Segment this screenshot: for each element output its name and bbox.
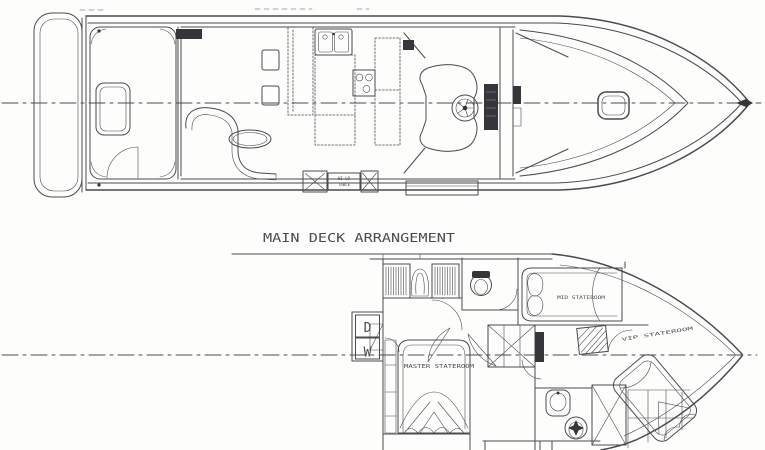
- mid-stateroom-label: MID STATEROOM: [557, 295, 605, 301]
- galley: [288, 27, 400, 145]
- cockpit-hatch: [96, 83, 130, 135]
- side-cabinet: [385, 340, 396, 433]
- mid-bed: [522, 268, 622, 321]
- boat-plan-scan: HI-LO TABLE MAIN DECK ARRANGEMENT: [0, 0, 765, 450]
- foredeck: [598, 92, 629, 119]
- dryer-label: D: [364, 321, 372, 336]
- master-stateroom-label: MASTER STATEROOM: [404, 364, 474, 370]
- bow-stem: [736, 99, 753, 107]
- vip-stateroom-label: VIP STATEROOM: [621, 326, 693, 343]
- lower-head: [535, 367, 626, 450]
- settee: [186, 108, 276, 174]
- lower-deck-view: D W: [2, 254, 757, 450]
- dash-box: [403, 40, 414, 50]
- plan-drawing-svg: HI-LO TABLE MAIN DECK ARRANGEMENT: [0, 0, 765, 450]
- hardtop-dashes: [80, 9, 369, 10]
- hanging-clothes: [411, 269, 428, 296]
- washer-dryer-unit: D W: [352, 312, 383, 361]
- master-bed: [398, 340, 470, 433]
- helm-electronics: [513, 86, 521, 104]
- galley-stove: [353, 70, 375, 96]
- helm-station: [403, 40, 521, 151]
- stairs: [488, 325, 544, 367]
- main-deck-view: HI-LO TABLE: [2, 9, 761, 197]
- master-stateroom: MASTER STATEROOM: [385, 340, 474, 433]
- instrument-panel: [484, 84, 498, 130]
- pillow: [528, 296, 543, 316]
- salon-entry-door: [176, 29, 202, 39]
- hi-lo-table-label-2: TABLE: [338, 182, 351, 187]
- washer-label: W: [364, 346, 372, 361]
- salon-cabinet: [262, 50, 279, 70]
- cockpit: [90, 27, 202, 187]
- vip-stateroom: VIP STATEROOM: [608, 326, 701, 446]
- hanging-lockers: [383, 264, 462, 298]
- pillow: [528, 274, 543, 296]
- salon: [186, 50, 279, 180]
- hi-lo-table-label-1: HI-LO: [338, 176, 351, 181]
- hull-and-swim-platform: [34, 13, 753, 197]
- forward-head: [462, 258, 518, 325]
- plan-title: MAIN DECK ARRANGEMENT: [263, 230, 456, 245]
- salon-cabinet: [262, 86, 279, 105]
- cockpit-door-arc: [107, 147, 138, 178]
